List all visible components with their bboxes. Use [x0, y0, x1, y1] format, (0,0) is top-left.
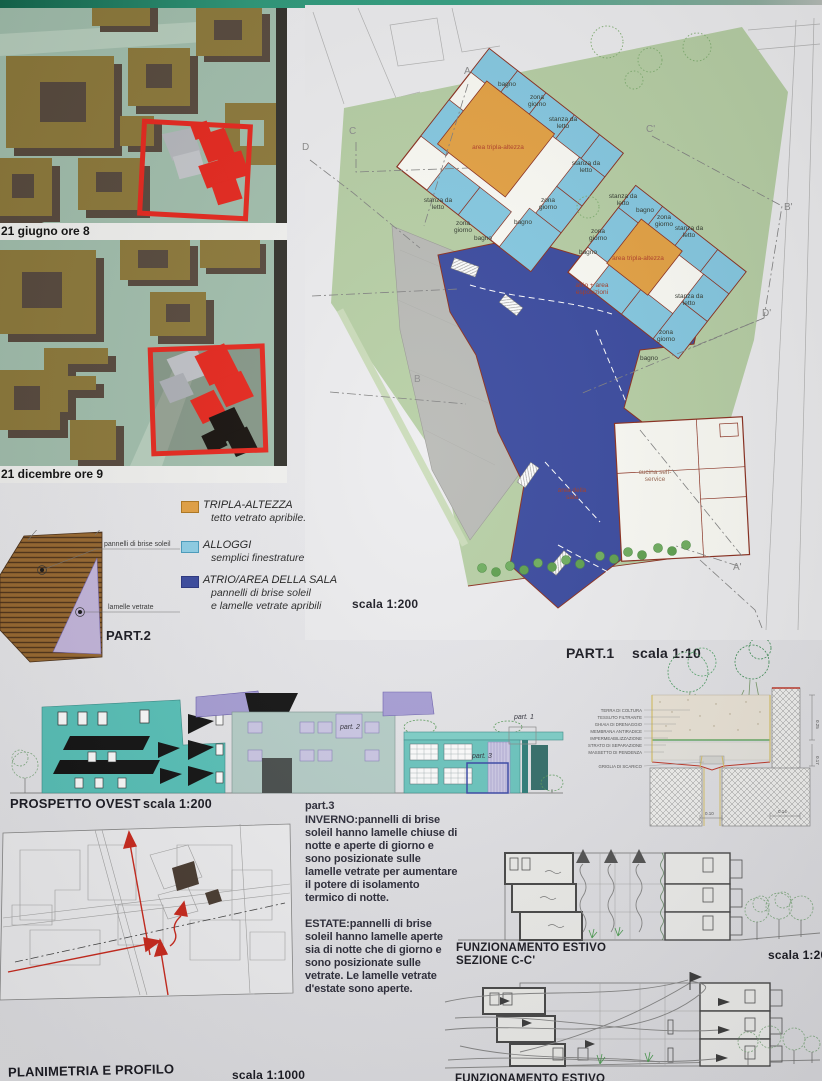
legend: TRIPLA-ALTEZZA tetto vetrato apribile. A… [181, 499, 356, 614]
section-bottom-plants [597, 1052, 653, 1064]
section-cc-subtitle: SEZIONE C-C' [456, 955, 535, 967]
room-label: stanza da letto [417, 198, 459, 212]
room-label: zona giorno [448, 221, 478, 235]
part1-detail-drawing: TERRA DI COLTURA TESSUTO FILTRANTE GHIAI… [555, 640, 822, 840]
section-cc-trees [745, 892, 813, 940]
room-label: bagno [468, 236, 498, 243]
section-letter: B' [784, 202, 793, 213]
part1-dim: 0.10 [705, 811, 714, 816]
elevation-callout-part2: part. 2 [340, 724, 360, 731]
room-label: bagno [492, 82, 522, 89]
planimetria-drawing [0, 820, 300, 1006]
room-label: zona giorno [651, 330, 681, 344]
part1-layer-label: STRATO DI SEPARAZIONE [588, 743, 642, 748]
room-label: bagno [630, 208, 660, 215]
room-label: bagno [508, 220, 538, 227]
part2-title: PART.2 [106, 628, 151, 643]
legend-desc: tetto vetrato apribile. [211, 512, 306, 524]
part3-notes-summer: ESTATE:pannelli di brise soleil hanno la… [305, 918, 460, 996]
legend-desc: semplici finestrature [211, 552, 304, 564]
legend-title: TRIPLA-ALTEZZA [203, 499, 293, 511]
legend-swatch-orange [181, 501, 199, 513]
part2-callout-bottom: lamelle vetrate [108, 604, 154, 611]
part1-layer-label: MASSETTO DI PENDENZA [588, 750, 642, 755]
atrium-label: atrio + area esposizioni [570, 283, 614, 297]
section-letter: A [464, 66, 471, 77]
room-label: zona giorno [533, 198, 563, 212]
part3-notes: part.3 INVERNO:pannelli di brise soleil … [305, 800, 460, 1009]
elevation-tree-left [12, 750, 38, 793]
section-letter: B [414, 374, 421, 385]
part1-layer-label: TESSUTO FILTRANTE [598, 715, 643, 720]
elevation-callout-part3: part. 3 [472, 753, 492, 760]
section-bottom-drawing [440, 970, 822, 1081]
kitchen-label: cucina self-service [631, 470, 679, 484]
part1-dim: 0.14 [778, 809, 787, 814]
part1-dim: 0.25 [815, 720, 820, 729]
room-label: zona giorno [522, 95, 552, 109]
room-label: stanza da letto [565, 161, 607, 175]
room-label: stanza da letto [602, 194, 644, 208]
part1-layer-label: TERRA DI COLTURA [601, 708, 642, 713]
purple-roof-2 [383, 692, 434, 716]
elevation-callout-part1: part. 1 [514, 714, 534, 721]
room-label: bagno [634, 356, 664, 363]
site-plan-scale: scala 1:200 [352, 597, 418, 611]
elevation-building-b [232, 712, 395, 793]
section-letter: C' [646, 124, 655, 135]
room-label: stanza da letto [542, 117, 584, 131]
section-cc-air-arrows [576, 849, 646, 932]
section-cc-title: FUNZIONAMENTO ESTIVO [456, 942, 606, 954]
section-cc-building [505, 853, 742, 940]
section-letter: C [349, 126, 356, 137]
part1-layer-label: IMPERMEABILIZZAZIONE [590, 736, 642, 741]
part3-notes-title: part.3 [305, 800, 460, 813]
legend-desc: pannelli di brise soleil [211, 587, 311, 599]
elevation-title: PROSPETTO OVEST [10, 796, 141, 811]
part2-callout-top: pannelli di brise soleil [104, 541, 171, 548]
part1-layer-label: GHIAIA DI DRENAGGIO [595, 722, 643, 727]
section-letter: D' [762, 308, 771, 319]
section-bottom-title: FUNZIONAMENTO ESTIVO [455, 1073, 605, 1081]
room-label: stanza da letto [668, 226, 710, 240]
room-label-tripla: area tripla-altezza [471, 145, 525, 152]
legend-title: ALLOGGI [203, 539, 251, 551]
part1-layer-label: MEMBRANA ANTIRADICE [590, 729, 642, 734]
part1-dim: 0.17 [815, 756, 820, 765]
hall-area-label: area della sala [553, 488, 591, 502]
part1-layer-label: GRIGLIA DI SCARICO [599, 764, 643, 769]
section-cc-scale: scala 1:200 [768, 948, 822, 962]
section-cc-plants [589, 927, 623, 938]
planimetria-title: PLANIMETRIA E PROFILO [8, 1061, 174, 1079]
legend-desc: e lamelle vetrate apribili [211, 600, 321, 612]
room-label: zona giorno [583, 229, 613, 243]
section-bottom-airflow [445, 972, 730, 1062]
room-label: bagno [573, 250, 603, 257]
legend-title: ATRIO/AREA DELLA SALA [203, 574, 337, 586]
section-letter: A' [733, 562, 742, 573]
architecture-presentation-board: 21 giugno ore 8 [0, 0, 822, 1081]
elevation-scale: scala 1:200 [143, 797, 212, 811]
planimetria-scale: scala 1:1000 [232, 1068, 305, 1081]
section-letter: D [302, 142, 309, 153]
part3-notes-winter: INVERNO:pannelli di brise soleil hanno l… [305, 814, 460, 905]
elevation-canopy [404, 720, 563, 740]
room-label-tripla: area tripla-altezza [611, 256, 665, 263]
room-label: stanza da letto [668, 294, 710, 308]
part2-detail-drawing [0, 530, 185, 665]
west-elevation-drawing [5, 685, 565, 797]
